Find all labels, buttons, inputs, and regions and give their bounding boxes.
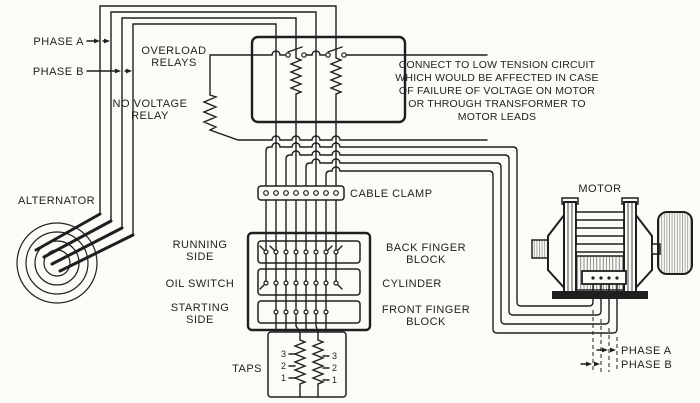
tap-number: 1 bbox=[332, 375, 337, 385]
running-side-label-1: RUNNING bbox=[173, 239, 228, 251]
back-finger-label-2: BLOCK bbox=[406, 254, 446, 266]
note-line: MOTOR LEADS bbox=[458, 111, 536, 123]
motor-terminal-box bbox=[582, 271, 626, 284]
cable-clamp-label: CABLE CLAMP bbox=[350, 188, 433, 200]
front-finger-label-2: BLOCK bbox=[406, 316, 446, 328]
overload-relays-label-2: RELAYS bbox=[151, 57, 197, 69]
back-finger-label-1: BACK FINGER bbox=[386, 242, 466, 254]
tap-number: 3 bbox=[332, 351, 337, 361]
no-voltage-relay-label-1: NO VOLTAGE bbox=[113, 98, 188, 110]
motor-crossbar bbox=[576, 212, 624, 220]
no-voltage-relay-label-2: RELAY bbox=[131, 110, 169, 122]
note-line: OF FAILURE OF VOLTAGE ON MOTOR bbox=[399, 85, 595, 97]
motor-crossbar bbox=[576, 228, 624, 236]
starting-side-label-1: STARTING bbox=[171, 302, 230, 314]
note-line: OR THROUGH TRANSFORMER TO bbox=[408, 98, 586, 110]
motor-left-shaft-stub bbox=[532, 240, 548, 258]
overload-relays-label-1: OVERLOAD bbox=[141, 45, 206, 57]
cylinder-label: CYLINDER bbox=[382, 278, 442, 290]
phase-a-bottom-label: PHASE A bbox=[621, 345, 672, 357]
motor-base bbox=[552, 291, 648, 299]
oil-switch-label: OIL SWITCH bbox=[166, 278, 235, 290]
front-finger-label-1: FRONT FINGER bbox=[382, 304, 470, 316]
wiring-diagram: PHASE A PHASE B OVERLOAD RELAYS NO VOLTA… bbox=[0, 0, 700, 403]
note-line: CONNECT TO LOW TENSION CIRCUIT bbox=[399, 59, 596, 71]
phase-b-bottom-label: PHASE B bbox=[621, 359, 672, 371]
motor-frame-plate-left bbox=[564, 202, 576, 292]
motor-pulley bbox=[658, 212, 692, 274]
tap-number: 2 bbox=[332, 363, 337, 373]
tap-number: 3 bbox=[281, 349, 286, 359]
phase-b-top-label: PHASE B bbox=[33, 66, 84, 78]
note-line: WHICH WOULD BE AFFECTED IN CASE bbox=[395, 72, 598, 84]
running-side-label-2: SIDE bbox=[186, 251, 214, 263]
taps-label: TAPS bbox=[232, 363, 262, 375]
starting-side-label-2: SIDE bbox=[186, 314, 214, 326]
tap-number: 2 bbox=[281, 361, 286, 371]
motor-crossbar bbox=[576, 244, 624, 252]
alternator-label: ALTERNATOR bbox=[18, 195, 95, 207]
tap-number: 1 bbox=[281, 373, 286, 383]
motor-label: MOTOR bbox=[578, 183, 621, 195]
phase-a-top-label: PHASE A bbox=[33, 36, 84, 48]
